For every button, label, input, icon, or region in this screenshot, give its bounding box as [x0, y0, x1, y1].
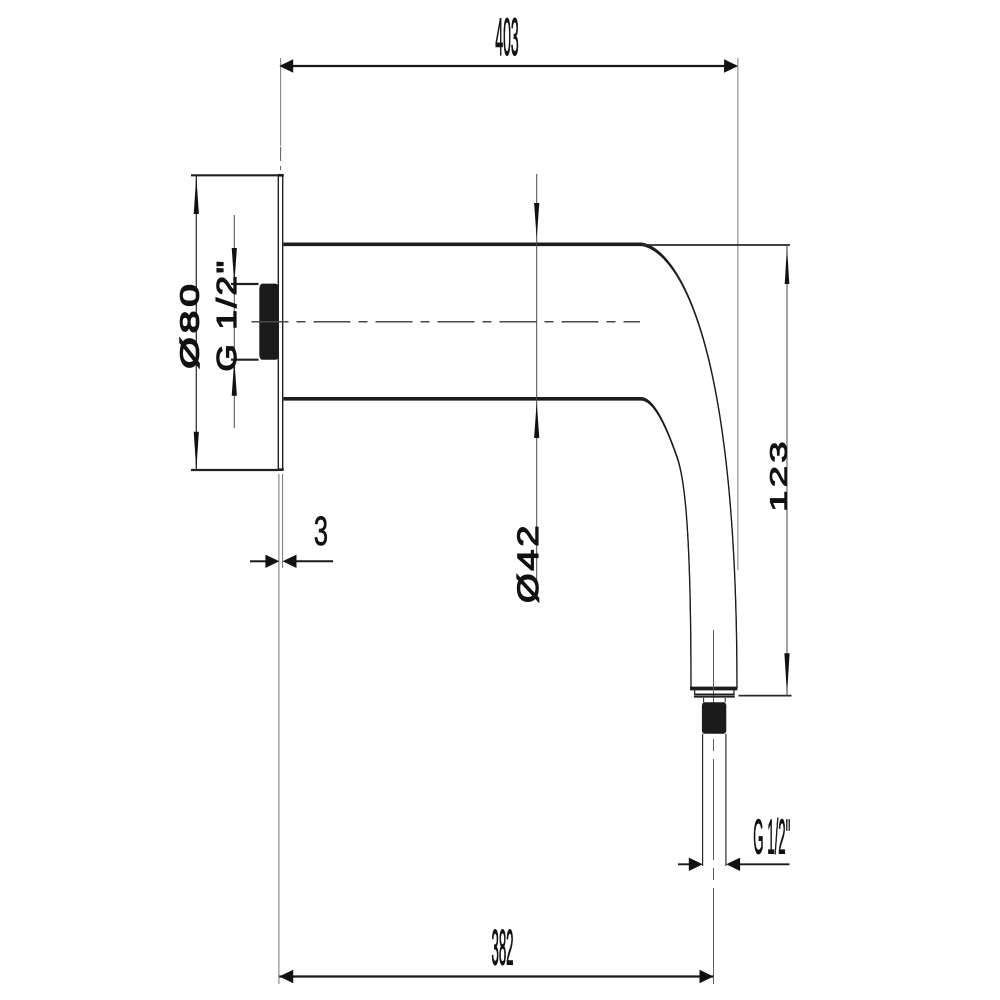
svg-text:G 1/2": G 1/2" — [753, 811, 790, 865]
svg-text:403: 403 — [495, 8, 518, 67]
svg-text:382: 382 — [491, 920, 513, 976]
svg-text:Ø80: Ø80 — [175, 280, 205, 368]
svg-text:Ø42: Ø42 — [512, 523, 545, 603]
svg-text:3: 3 — [314, 508, 328, 554]
svg-text:123: 123 — [765, 438, 791, 512]
svg-text:G 1/2": G 1/2" — [211, 258, 242, 371]
